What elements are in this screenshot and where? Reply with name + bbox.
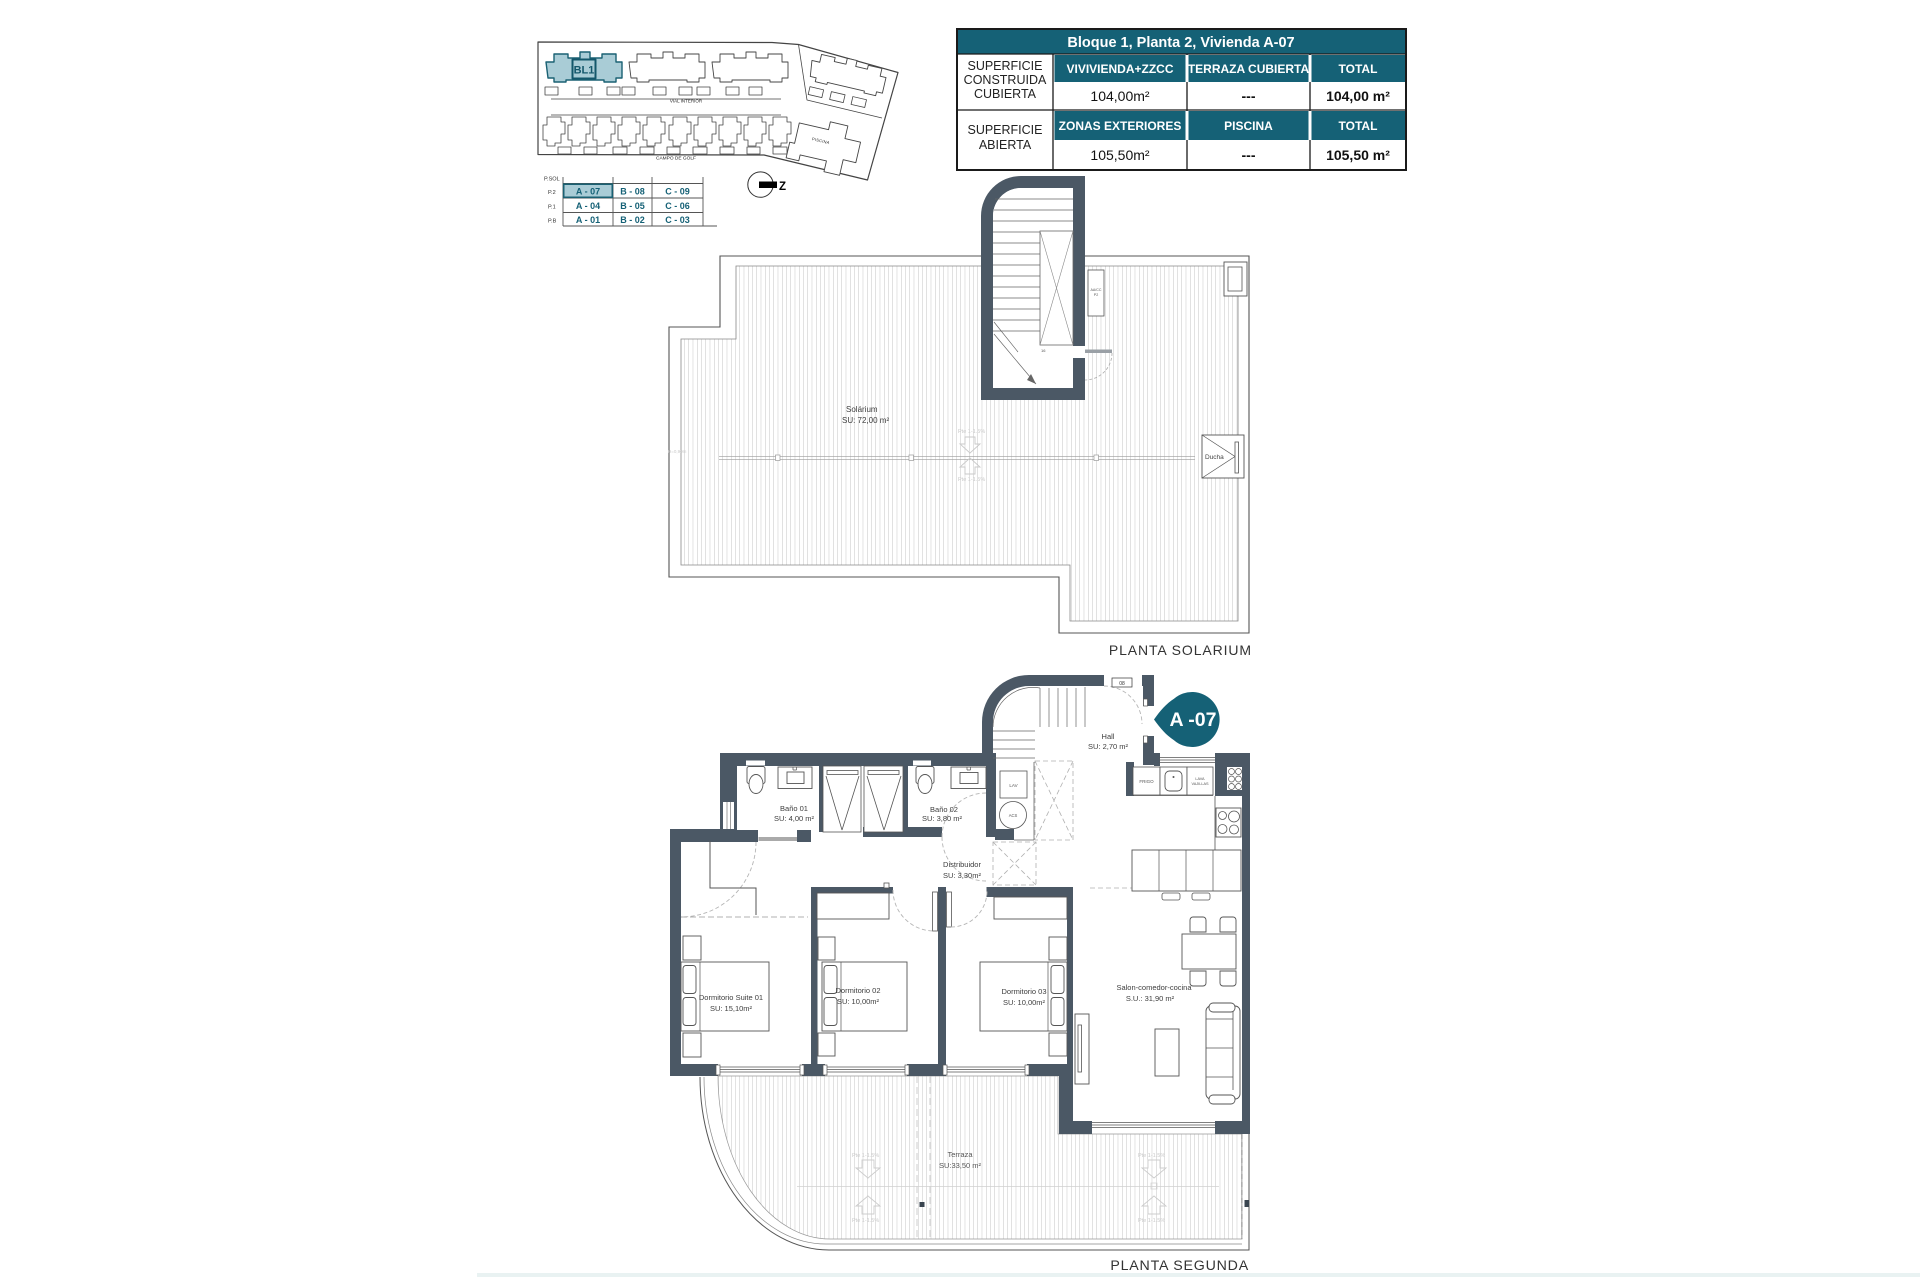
svg-text:Hall: Hall xyxy=(1102,732,1115,741)
svg-text:---: --- xyxy=(1242,88,1256,104)
svg-text:TOTAL: TOTAL xyxy=(1339,62,1378,76)
svg-text:C - 09: C - 09 xyxy=(665,187,690,197)
svg-text:Distribuidor: Distribuidor xyxy=(943,860,981,869)
svg-text:P2: P2 xyxy=(1094,293,1098,297)
svg-text:Dormitorio 02: Dormitorio 02 xyxy=(835,986,880,995)
svg-text:104,00m²: 104,00m² xyxy=(1090,88,1149,104)
svg-text:A - 07: A - 07 xyxy=(576,187,600,197)
svg-text:Pte 1-1.5%: Pte 1-1.5% xyxy=(958,477,985,483)
svg-text:SU: 3,30m²: SU: 3,30m² xyxy=(943,871,981,880)
svg-text:S.U.: 31,90 m²: S.U.: 31,90 m² xyxy=(1126,994,1175,1003)
svg-text:105,50m²: 105,50m² xyxy=(1090,147,1149,163)
svg-text:SU:33,50 m²: SU:33,50 m² xyxy=(939,1161,982,1170)
svg-text:Ducha: Ducha xyxy=(1205,454,1224,461)
svg-text:PLANTA SOLARIUM: PLANTA SOLARIUM xyxy=(1109,642,1252,658)
svg-text:Salon-comedor-cocina: Salon-comedor-cocina xyxy=(1116,983,1192,992)
svg-text:TOTAL: TOTAL xyxy=(1339,119,1378,133)
svg-text:P.B: P.B xyxy=(548,219,557,225)
svg-text:VIAL INTERIOR: VIAL INTERIOR xyxy=(670,99,703,104)
svg-text:C - 06: C - 06 xyxy=(665,201,690,211)
svg-text:Baño 01: Baño 01 xyxy=(780,804,808,813)
svg-text:Dormitorio Suite 01: Dormitorio Suite 01 xyxy=(699,993,763,1002)
svg-text:SU: 4,00 m²: SU: 4,00 m² xyxy=(774,814,815,823)
svg-text:SUPERFICIE: SUPERFICIE xyxy=(967,59,1042,73)
svg-text:B - 08: B - 08 xyxy=(620,187,645,197)
svg-text:Pte 1-1.5%: Pte 1-1.5% xyxy=(1138,1218,1165,1224)
svg-text:PLANTA SEGUNDA: PLANTA SEGUNDA xyxy=(1110,1258,1249,1274)
svg-text:SU: 10,00m²: SU: 10,00m² xyxy=(837,997,880,1006)
svg-text:Pte 1-1.5%: Pte 1-1.5% xyxy=(852,1153,879,1159)
svg-text:A - 01: A - 01 xyxy=(576,215,600,225)
svg-text:104,00 m²: 104,00 m² xyxy=(1326,88,1390,104)
svg-text:TERRAZA CUBIERTA: TERRAZA CUBIERTA xyxy=(1188,62,1310,76)
svg-text:VIVIVIENDA+ZZCC: VIVIVIENDA+ZZCC xyxy=(1066,62,1173,76)
svg-text:LAV: LAV xyxy=(1009,783,1017,788)
svg-text:ACS: ACS xyxy=(1009,813,1018,818)
svg-text:C - 03: C - 03 xyxy=(665,215,690,225)
svg-text:B - 02: B - 02 xyxy=(620,215,645,225)
svg-text:PISCINA: PISCINA xyxy=(1224,119,1273,133)
svg-text:P.2: P.2 xyxy=(548,190,556,196)
svg-text:SU: 72,00 m²: SU: 72,00 m² xyxy=(842,416,889,425)
svg-text:08: 08 xyxy=(1119,681,1125,687)
svg-text:Baño 02: Baño 02 xyxy=(930,805,958,814)
svg-text:BL1: BL1 xyxy=(574,65,595,77)
svg-text:Bloque 1, Planta 2, Vivienda A: Bloque 1, Planta 2, Vivienda A-07 xyxy=(1067,35,1294,51)
svg-text:SU: 15,10m²: SU: 15,10m² xyxy=(710,1004,753,1013)
svg-text:P.SOL: P.SOL xyxy=(544,177,560,183)
svg-text:LAVA: LAVA xyxy=(1195,777,1205,781)
svg-text:CUBIERTA: CUBIERTA xyxy=(974,87,1037,101)
svg-text:VAJILLAS: VAJILLAS xyxy=(1191,782,1208,786)
svg-text:ZONAS EXTERIORES: ZONAS EXTERIORES xyxy=(1059,119,1182,133)
svg-text:CAMPO DE GOLF: CAMPO DE GOLF xyxy=(656,156,696,162)
svg-text:SU: 10,00m²: SU: 10,00m² xyxy=(1003,998,1046,1007)
svg-text:Pte 1-1.5%: Pte 1-1.5% xyxy=(1138,1153,1165,1159)
svg-text:SUPERFICIE: SUPERFICIE xyxy=(967,123,1042,137)
svg-text:A - 04: A - 04 xyxy=(576,201,600,211)
svg-text:Pte 1-1.5%: Pte 1-1.5% xyxy=(958,429,985,435)
svg-text:P.1: P.1 xyxy=(548,205,556,211)
svg-text:Terraza: Terraza xyxy=(947,1150,973,1159)
svg-text:SU: 3,80 m²: SU: 3,80 m² xyxy=(922,814,963,823)
svg-text:ABIERTA: ABIERTA xyxy=(979,138,1032,152)
svg-text:B - 05: B - 05 xyxy=(620,201,645,211)
svg-text:H=0,90m: H=0,90m xyxy=(668,449,687,454)
svg-text:FRIGO: FRIGO xyxy=(1139,779,1154,784)
svg-text:Pte 1-1.5%: Pte 1-1.5% xyxy=(852,1218,879,1224)
svg-text:Solárium: Solárium xyxy=(846,405,878,414)
svg-text:A -07: A -07 xyxy=(1170,709,1217,731)
svg-text:Dormitorio 03: Dormitorio 03 xyxy=(1001,987,1046,996)
svg-text:105,50 m²: 105,50 m² xyxy=(1326,147,1390,163)
svg-text:Z: Z xyxy=(779,181,786,193)
svg-text:SU: 2,70 m²: SU: 2,70 m² xyxy=(1088,742,1129,751)
svg-text:AA/CC: AA/CC xyxy=(1091,288,1102,292)
svg-text:CONSTRUIDA: CONSTRUIDA xyxy=(964,73,1047,87)
svg-text:16: 16 xyxy=(1041,348,1046,353)
svg-text:---: --- xyxy=(1242,147,1256,163)
